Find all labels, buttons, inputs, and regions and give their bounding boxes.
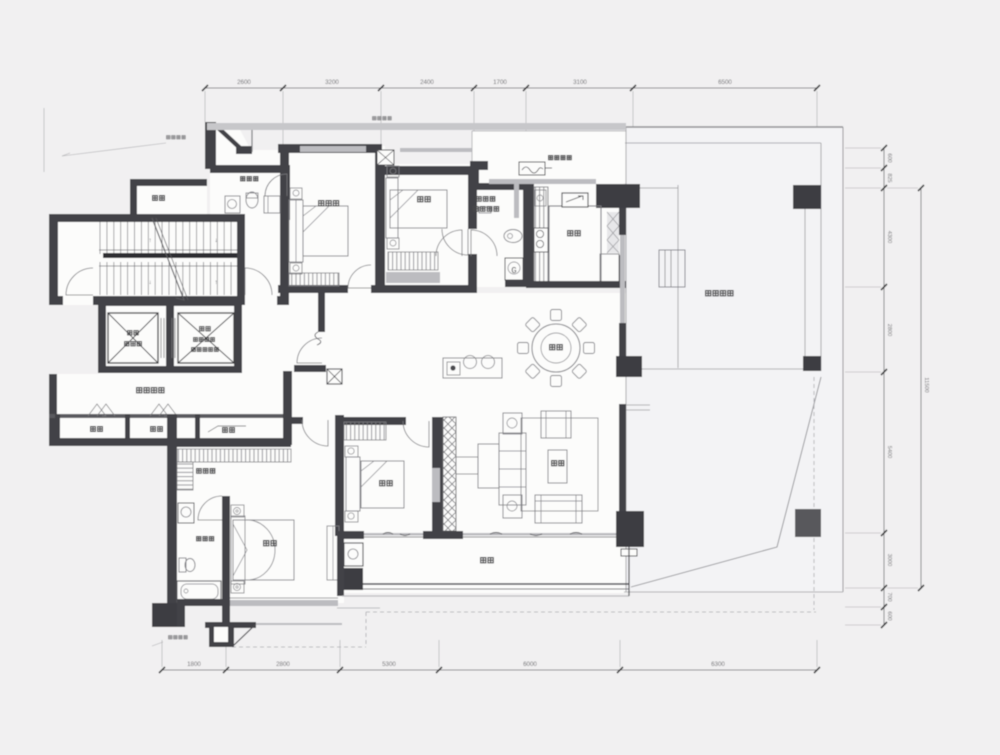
svg-text:5400: 5400 bbox=[886, 446, 892, 458]
svg-text:825: 825 bbox=[886, 173, 892, 182]
svg-text:6500: 6500 bbox=[718, 79, 732, 86]
svg-text:3200: 3200 bbox=[325, 79, 339, 86]
svg-text:1800: 1800 bbox=[187, 661, 201, 668]
svg-text:11500: 11500 bbox=[923, 377, 929, 392]
svg-text:↓: ↓ bbox=[215, 238, 218, 244]
svg-text:600: 600 bbox=[886, 153, 892, 162]
svg-text:↑: ↑ bbox=[149, 238, 152, 244]
svg-text:↓: ↓ bbox=[149, 280, 152, 286]
svg-text:700: 700 bbox=[886, 592, 892, 601]
svg-text:2800: 2800 bbox=[276, 661, 290, 668]
svg-text:6000: 6000 bbox=[523, 661, 537, 668]
svg-text:2600: 2600 bbox=[237, 79, 251, 86]
svg-text:5300: 5300 bbox=[382, 661, 396, 668]
svg-text:2800: 2800 bbox=[886, 324, 892, 336]
svg-text:3000: 3000 bbox=[886, 554, 892, 566]
svg-text:4300: 4300 bbox=[886, 231, 892, 243]
svg-text:G: G bbox=[511, 266, 516, 276]
svg-text:6300: 6300 bbox=[711, 661, 725, 668]
svg-text:600: 600 bbox=[886, 611, 892, 620]
svg-text:3100: 3100 bbox=[573, 79, 587, 86]
svg-text:↑: ↑ bbox=[215, 280, 218, 286]
svg-text:2400: 2400 bbox=[420, 79, 434, 86]
svg-text:1700: 1700 bbox=[493, 79, 507, 86]
